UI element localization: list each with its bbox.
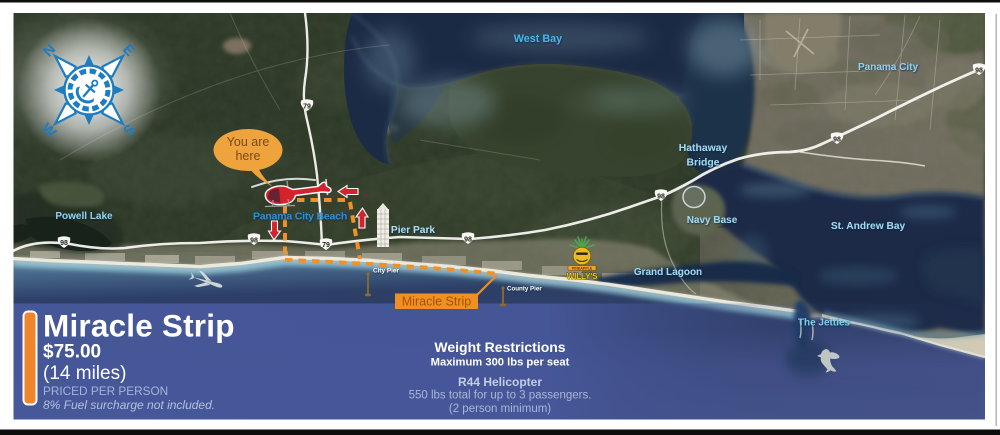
svg-text:Powell Lake: Powell Lake xyxy=(55,211,113,222)
svg-text:(2 person minimum): (2 person minimum) xyxy=(449,403,551,415)
svg-text:79: 79 xyxy=(322,242,330,249)
svg-text:Navy Base: Navy Base xyxy=(687,215,738,226)
svg-text:Bridge: Bridge xyxy=(687,158,720,169)
svg-text:County Pier: County Pier xyxy=(507,286,542,293)
svg-text:here: here xyxy=(235,149,260,163)
svg-text:PRICED PER PERSON: PRICED PER PERSON xyxy=(43,384,168,398)
svg-text:98: 98 xyxy=(657,194,665,201)
svg-text:City Pier: City Pier xyxy=(373,268,399,275)
svg-text:Miracle Strip: Miracle Strip xyxy=(402,295,472,309)
svg-text:Hathaway: Hathaway xyxy=(679,143,728,154)
svg-text:R44 Helicopter: R44 Helicopter xyxy=(458,375,542,389)
svg-text:98: 98 xyxy=(833,137,841,144)
svg-text:98: 98 xyxy=(975,68,983,75)
svg-text:Pier Park: Pier Park xyxy=(391,225,436,236)
svg-text:79: 79 xyxy=(303,104,311,111)
svg-text:WILLY'S: WILLY'S xyxy=(567,272,598,281)
svg-text:The Jetties: The Jetties xyxy=(798,318,851,329)
svg-text:98: 98 xyxy=(60,240,68,247)
svg-text:Panama City Beach: Panama City Beach xyxy=(253,211,347,223)
svg-text:Grand Lagoon: Grand Lagoon xyxy=(634,267,702,278)
svg-text:West Bay: West Bay xyxy=(514,33,562,45)
svg-text:Maximum 300 lbs per seat: Maximum 300 lbs per seat xyxy=(431,357,570,369)
svg-text:(14 miles): (14 miles) xyxy=(43,363,126,384)
svg-text:98: 98 xyxy=(464,237,472,244)
svg-text:Panama City: Panama City xyxy=(858,62,918,73)
svg-text:St. Andrew Bay: St. Andrew Bay xyxy=(831,221,906,232)
svg-text:550 lbs total for up to 3 pass: 550 lbs total for up to 3 passengers. xyxy=(409,390,592,402)
svg-text:Miracle Strip: Miracle Strip xyxy=(43,308,235,344)
svg-text:PINEAPPLE: PINEAPPLE xyxy=(572,267,593,271)
svg-text:98: 98 xyxy=(250,238,258,245)
svg-text:Weight Restrictions: Weight Restrictions xyxy=(434,339,565,355)
svg-text:You are: You are xyxy=(227,135,270,149)
svg-text:8% Fuel surcharge not included: 8% Fuel surcharge not included. xyxy=(43,398,215,412)
svg-text:$75.00: $75.00 xyxy=(43,342,101,363)
